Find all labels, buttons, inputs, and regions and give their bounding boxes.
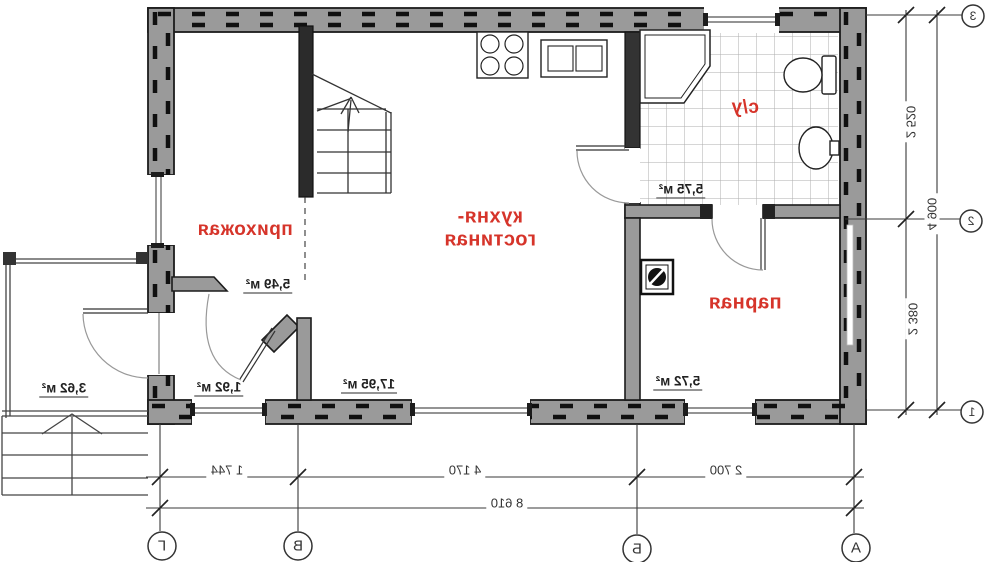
dim-bottom-segment-1: 1 744 (207, 463, 248, 478)
kitchen-sink (541, 40, 607, 77)
dim-right-segment-2: 2 380 (906, 299, 921, 340)
room-area-vestibule: 1,92 м² (195, 380, 244, 397)
axis-bubble-label-g: Г (158, 538, 166, 555)
room-label-hallway: прихожая (197, 219, 293, 241)
room-area-steam-room: 5,72 м² (654, 374, 703, 391)
axis-bubble-label-3: 3 (970, 9, 977, 23)
axis-bubble-label-1: 1 (969, 405, 976, 419)
sauna-furnace (641, 260, 673, 294)
right-wall-inner-strip (847, 225, 853, 345)
room-area-kitchen: 17,95 м² (341, 377, 397, 394)
dim-right-total: 4 900 (925, 194, 940, 235)
floor-plan-screenshot: прихожая 5,49 м² кухня- гостиная 17,95 м… (0, 0, 1000, 562)
axis-bubble-label-v: В (293, 538, 303, 555)
toilet (784, 56, 836, 94)
room-area-hallway: 5,49 м² (244, 277, 293, 294)
kitchen-stove (477, 32, 528, 78)
room-area-porch: 3,62 м² (40, 381, 89, 398)
dim-bottom-segment-2: 4 170 (445, 463, 486, 478)
staircase (305, 74, 391, 280)
floor-plan-drawing (0, 0, 1000, 562)
dim-bottom-segment-3: 2 700 (706, 463, 747, 478)
axis-bubble-label-2: 2 (968, 214, 975, 228)
room-label-bathroom: с/у (731, 97, 759, 119)
room-label-kitchen-line2: гостиная (444, 229, 536, 252)
room-label-steam-room: парная (708, 292, 781, 315)
dim-bottom-total: 8 610 (487, 496, 528, 511)
room-label-kitchen-line1: кухня- (457, 206, 523, 229)
axis-bubble-label-a: А (851, 540, 861, 557)
axis-bubble-label-b: Б (632, 541, 642, 558)
porch-and-steps (2, 252, 148, 495)
room-area-bathroom: 5,75 м² (657, 182, 706, 199)
dim-right-segment-1: 2 520 (904, 102, 919, 143)
